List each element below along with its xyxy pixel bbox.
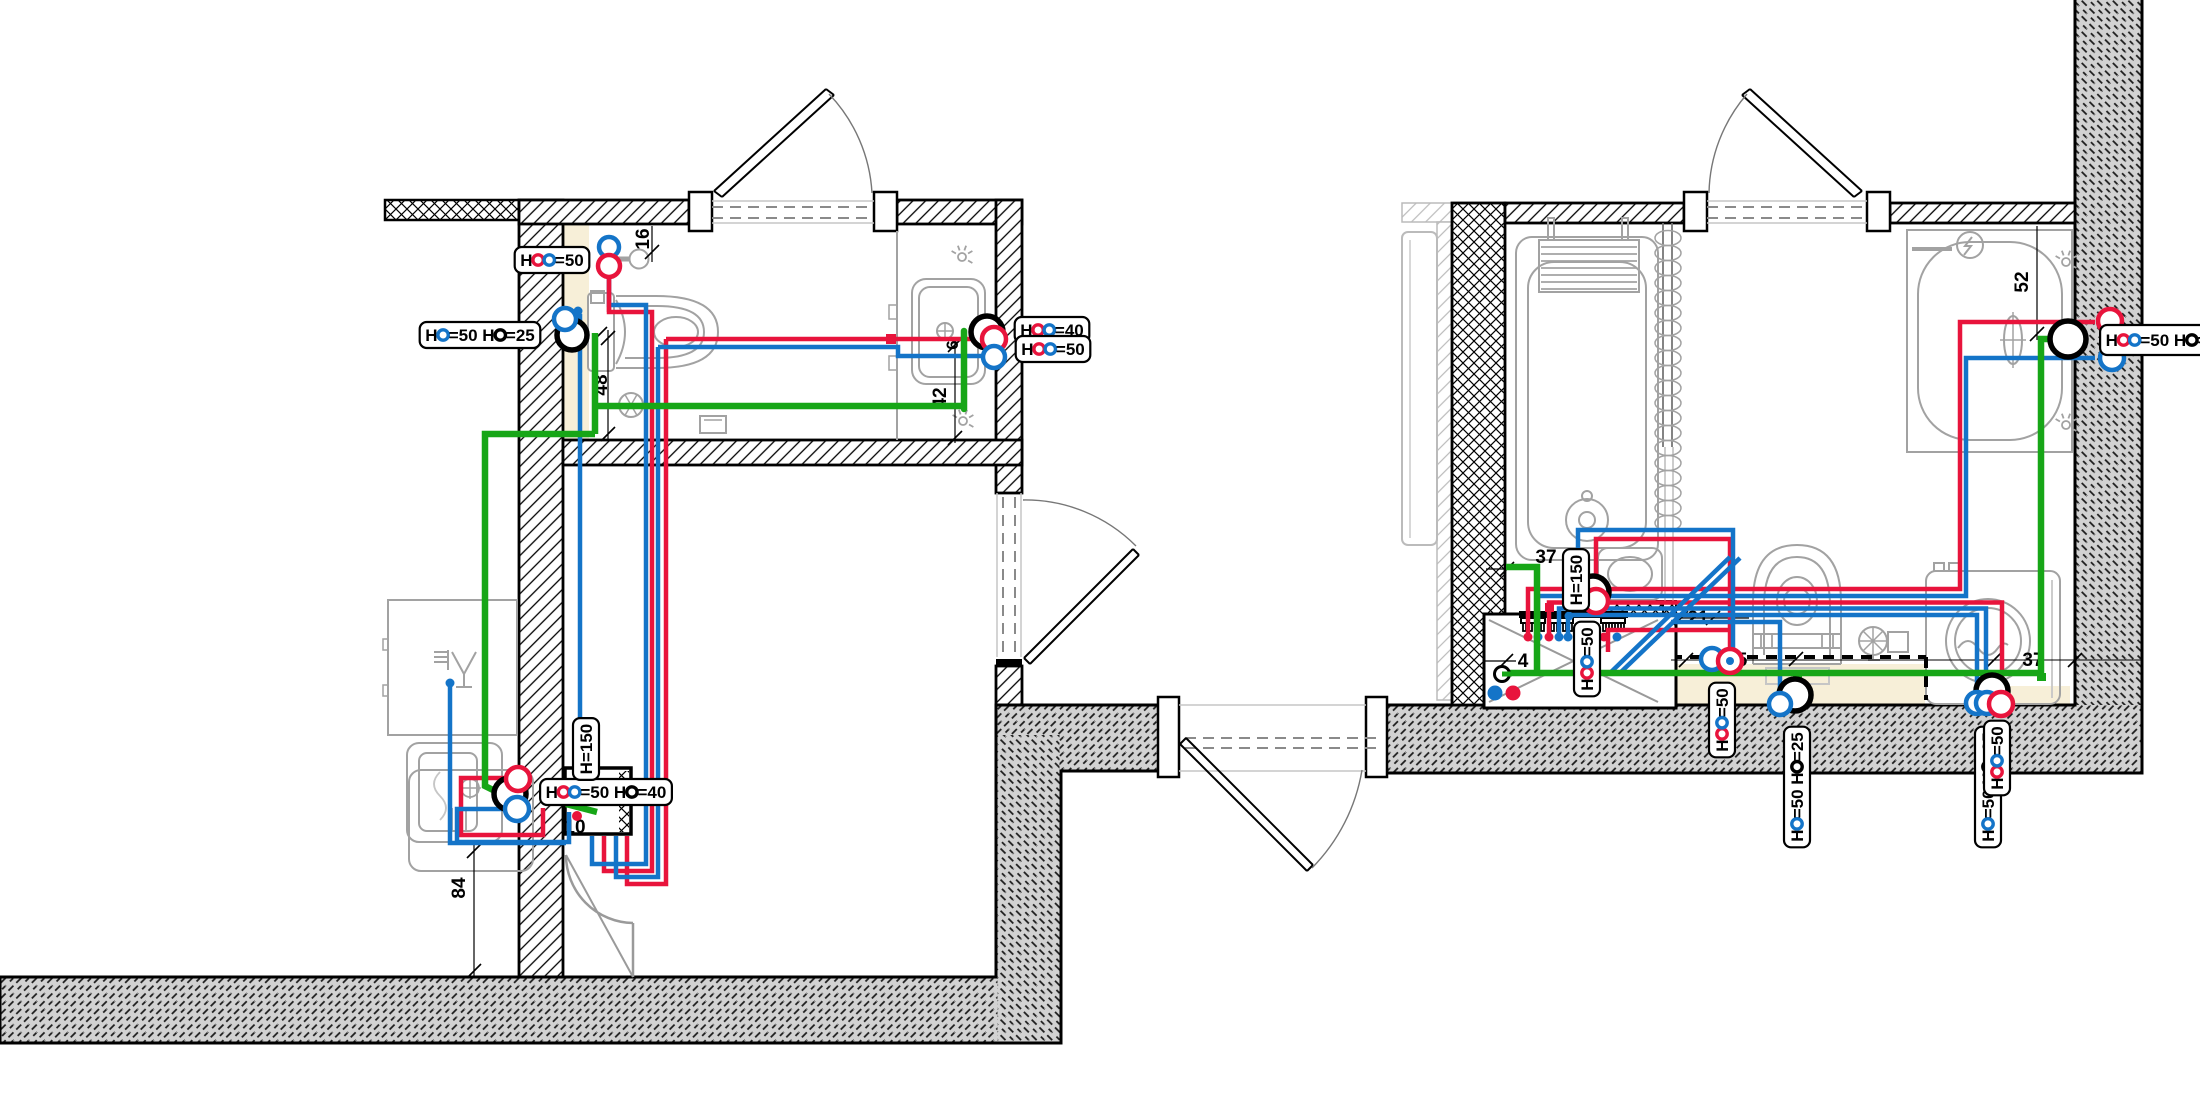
svg-text:=50 H: =50 H [1788,772,1807,818]
svg-text:H: H [1979,830,1998,842]
svg-text:=50 H: =50 H [449,326,495,345]
svg-text:H: H [520,251,532,270]
svg-text:H: H [546,783,558,802]
svg-text:=50 H: =50 H [2140,331,2186,350]
svg-text:H: H [1788,830,1807,842]
svg-text:=50: =50 [1578,627,1597,656]
svg-text:=50: =50 [555,251,584,270]
svg-text:H=150: H=150 [1567,555,1586,606]
svg-text:H: H [1713,740,1732,752]
svg-text:H: H [1021,340,1033,359]
svg-text:=50 H: =50 H [580,783,626,802]
svg-text:84: 84 [449,877,470,899]
svg-text:H: H [1578,679,1597,691]
svg-text:4: 4 [1518,651,1529,672]
svg-text:6: 6 [943,340,962,349]
svg-text:H=150: H=150 [577,724,596,775]
svg-text:52: 52 [2012,271,2033,292]
svg-text:=25: =25 [506,326,535,345]
svg-text:=40: =40 [638,783,667,802]
svg-text:H: H [2106,331,2118,350]
svg-text:H: H [425,326,437,345]
svg-text:=50: =50 [1988,726,2007,755]
svg-text:=50: =50 [1056,340,1085,359]
svg-text:=50: =50 [1713,688,1732,717]
svg-text:21: 21 [1687,608,1709,629]
svg-text:=25: =25 [1788,732,1807,761]
svg-text:H: H [1988,778,2007,790]
svg-text:16: 16 [633,228,654,249]
